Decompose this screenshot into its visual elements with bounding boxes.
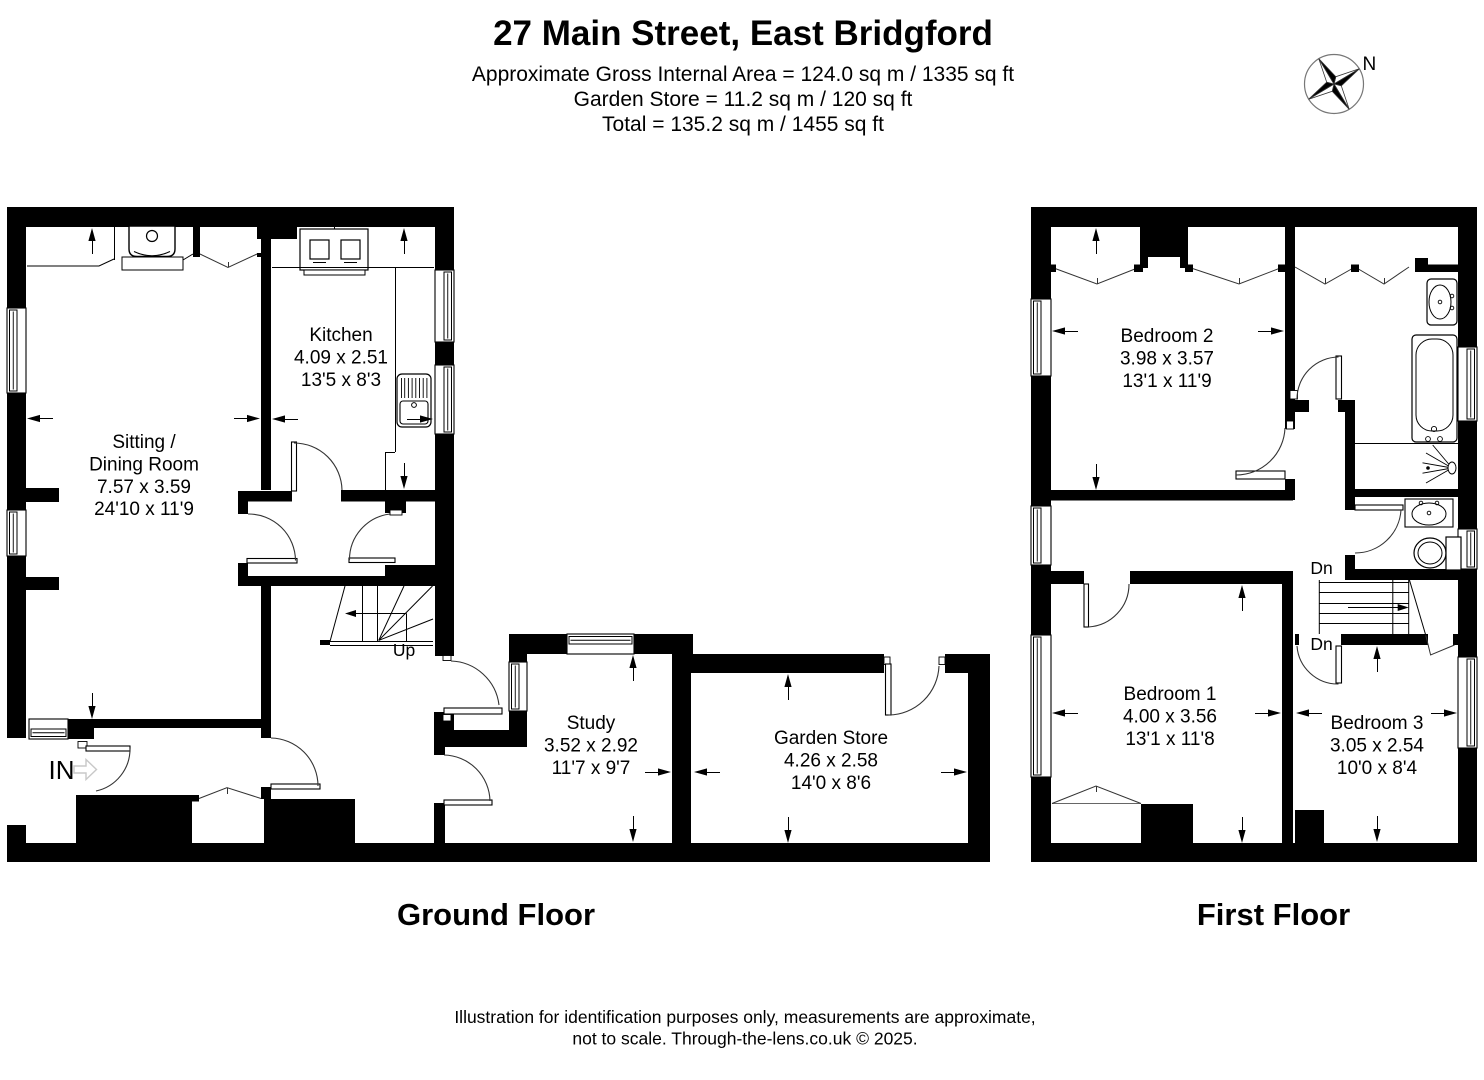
svg-text:not to scale. Through-the-lens: not to scale. Through-the-lens.co.uk © 2…: [572, 1029, 917, 1049]
svg-text:11'7 x 9'7: 11'7 x 9'7: [552, 758, 631, 779]
svg-text:Dining Room: Dining Room: [89, 454, 199, 475]
svg-text:Bedroom 2: Bedroom 2: [1121, 326, 1214, 347]
svg-text:Bedroom 1: Bedroom 1: [1124, 684, 1217, 705]
svg-text:3.52 x 2.92: 3.52 x 2.92: [544, 735, 638, 756]
svg-text:4.26 x 2.58: 4.26 x 2.58: [784, 750, 878, 771]
svg-text:Dn: Dn: [1310, 558, 1332, 578]
svg-text:Dn: Dn: [1310, 634, 1332, 654]
svg-text:27 Main Street, East Bridgford: 27 Main Street, East Bridgford: [493, 14, 993, 53]
svg-text:13'1 x 11'9: 13'1 x 11'9: [1122, 371, 1211, 392]
svg-text:N: N: [1363, 54, 1377, 75]
svg-text:Total = 135.2 sq m / 1455 sq f: Total = 135.2 sq m / 1455 sq ft: [602, 113, 884, 136]
svg-text:Sitting /: Sitting /: [112, 432, 176, 453]
svg-text:Approximate Gross Internal Are: Approximate Gross Internal Area = 124.0 …: [472, 63, 1014, 86]
svg-text:Up: Up: [393, 640, 415, 660]
svg-text:Garden Store: Garden Store: [774, 728, 888, 749]
svg-text:4.09 x 2.51: 4.09 x 2.51: [294, 347, 388, 368]
svg-text:Illustration for identificatio: Illustration for identification purposes…: [454, 1007, 1035, 1027]
svg-text:7.57 x 3.59: 7.57 x 3.59: [97, 477, 191, 498]
svg-text:13'5 x 8'3: 13'5 x 8'3: [301, 370, 381, 391]
svg-text:Bedroom 3: Bedroom 3: [1331, 713, 1424, 734]
svg-text:Kitchen: Kitchen: [309, 325, 372, 346]
svg-text:Garden Store = 11.2 sq m / 120: Garden Store = 11.2 sq m / 120 sq ft: [574, 88, 913, 111]
svg-text:IN: IN: [49, 755, 75, 785]
svg-text:4.00 x 3.56: 4.00 x 3.56: [1123, 706, 1217, 727]
svg-text:13'1 x 11'8: 13'1 x 11'8: [1125, 729, 1214, 750]
svg-text:First Floor: First Floor: [1197, 897, 1350, 932]
svg-text:Study: Study: [567, 713, 616, 734]
svg-text:3.05 x 2.54: 3.05 x 2.54: [1330, 735, 1424, 756]
svg-text:14'0 x 8'6: 14'0 x 8'6: [791, 773, 871, 794]
svg-text:10'0 x 8'4: 10'0 x 8'4: [1337, 758, 1418, 779]
svg-text:Ground Floor: Ground Floor: [397, 897, 595, 932]
svg-text:24'10 x 11'9: 24'10 x 11'9: [94, 499, 194, 520]
svg-text:3.98 x 3.57: 3.98 x 3.57: [1120, 348, 1214, 369]
